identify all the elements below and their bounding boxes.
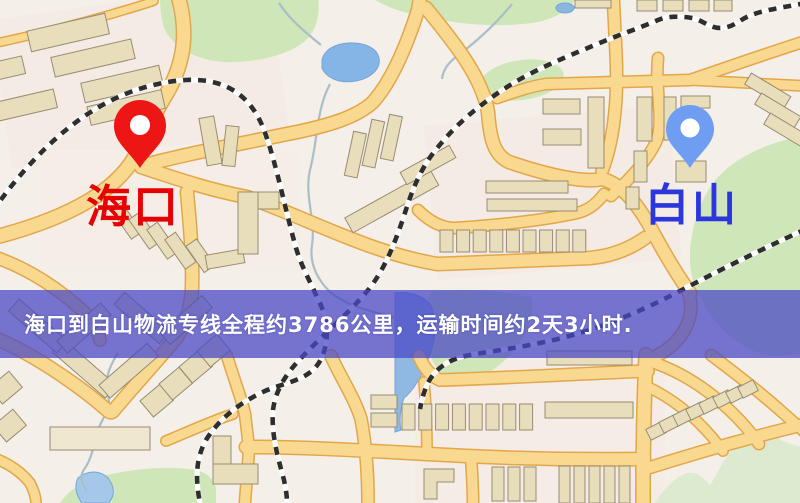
origin-label: 海口 xyxy=(86,180,180,233)
map-canvas[interactable]: 海口 白山 xyxy=(0,0,800,503)
destination-label: 白山 xyxy=(645,180,739,231)
map-viewport[interactable]: 海口 白山 海口到白山物流专线全程约3786公里，运输时间约2天3小时. xyxy=(0,0,800,503)
route-banner-text: 海口到白山物流专线全程约3786公里，运输时间约2天3小时. xyxy=(24,309,633,339)
route-banner: 海口到白山物流专线全程约3786公里，运输时间约2天3小时. xyxy=(0,290,800,358)
